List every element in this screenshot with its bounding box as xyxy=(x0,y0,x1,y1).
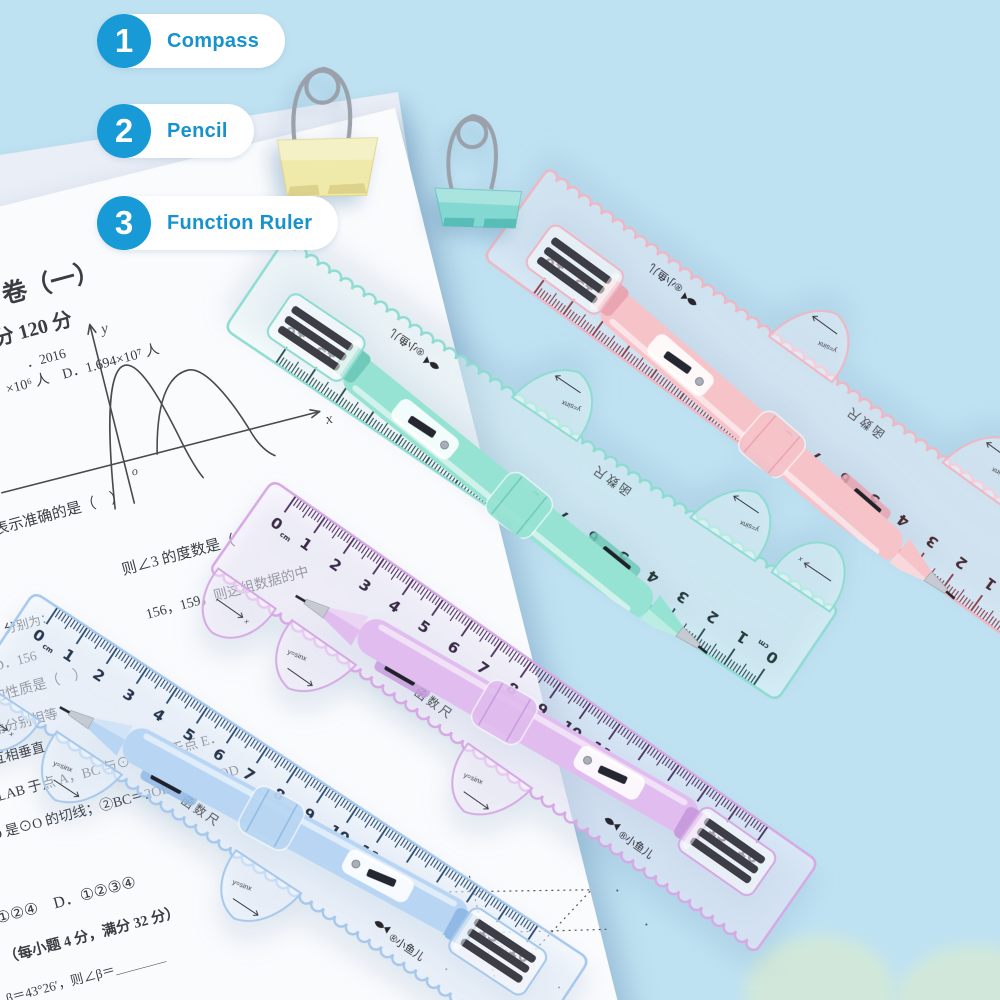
clip-wire-handle xyxy=(446,115,498,195)
callout-label: Compass xyxy=(167,30,259,53)
blurred-object xyxy=(895,945,1000,1000)
product-photo-stage: y x o xyxy=(0,0,1000,1000)
callout-label: Function Ruler xyxy=(167,212,312,235)
callout-compass: 1 Compass xyxy=(97,14,285,68)
y-axis-label: y xyxy=(98,320,111,338)
x-axis-label: x xyxy=(323,411,335,428)
callout-function-ruler: 3 Function Ruler xyxy=(97,196,338,250)
callout-label: Pencil xyxy=(167,120,228,143)
parabola-curve-2 xyxy=(139,355,275,483)
callout-pencil: 2 Pencil xyxy=(97,104,254,158)
parabola-curve-1 xyxy=(82,353,205,508)
clip-wire-handle xyxy=(293,68,352,149)
binder-clip-yellow xyxy=(261,44,396,206)
number-badge-2: 2 xyxy=(97,104,151,158)
number-badge-1: 1 xyxy=(97,14,151,68)
number-badge-3: 3 xyxy=(97,196,151,250)
binder-clip-teal xyxy=(415,97,537,238)
origin-label: o xyxy=(130,464,139,479)
